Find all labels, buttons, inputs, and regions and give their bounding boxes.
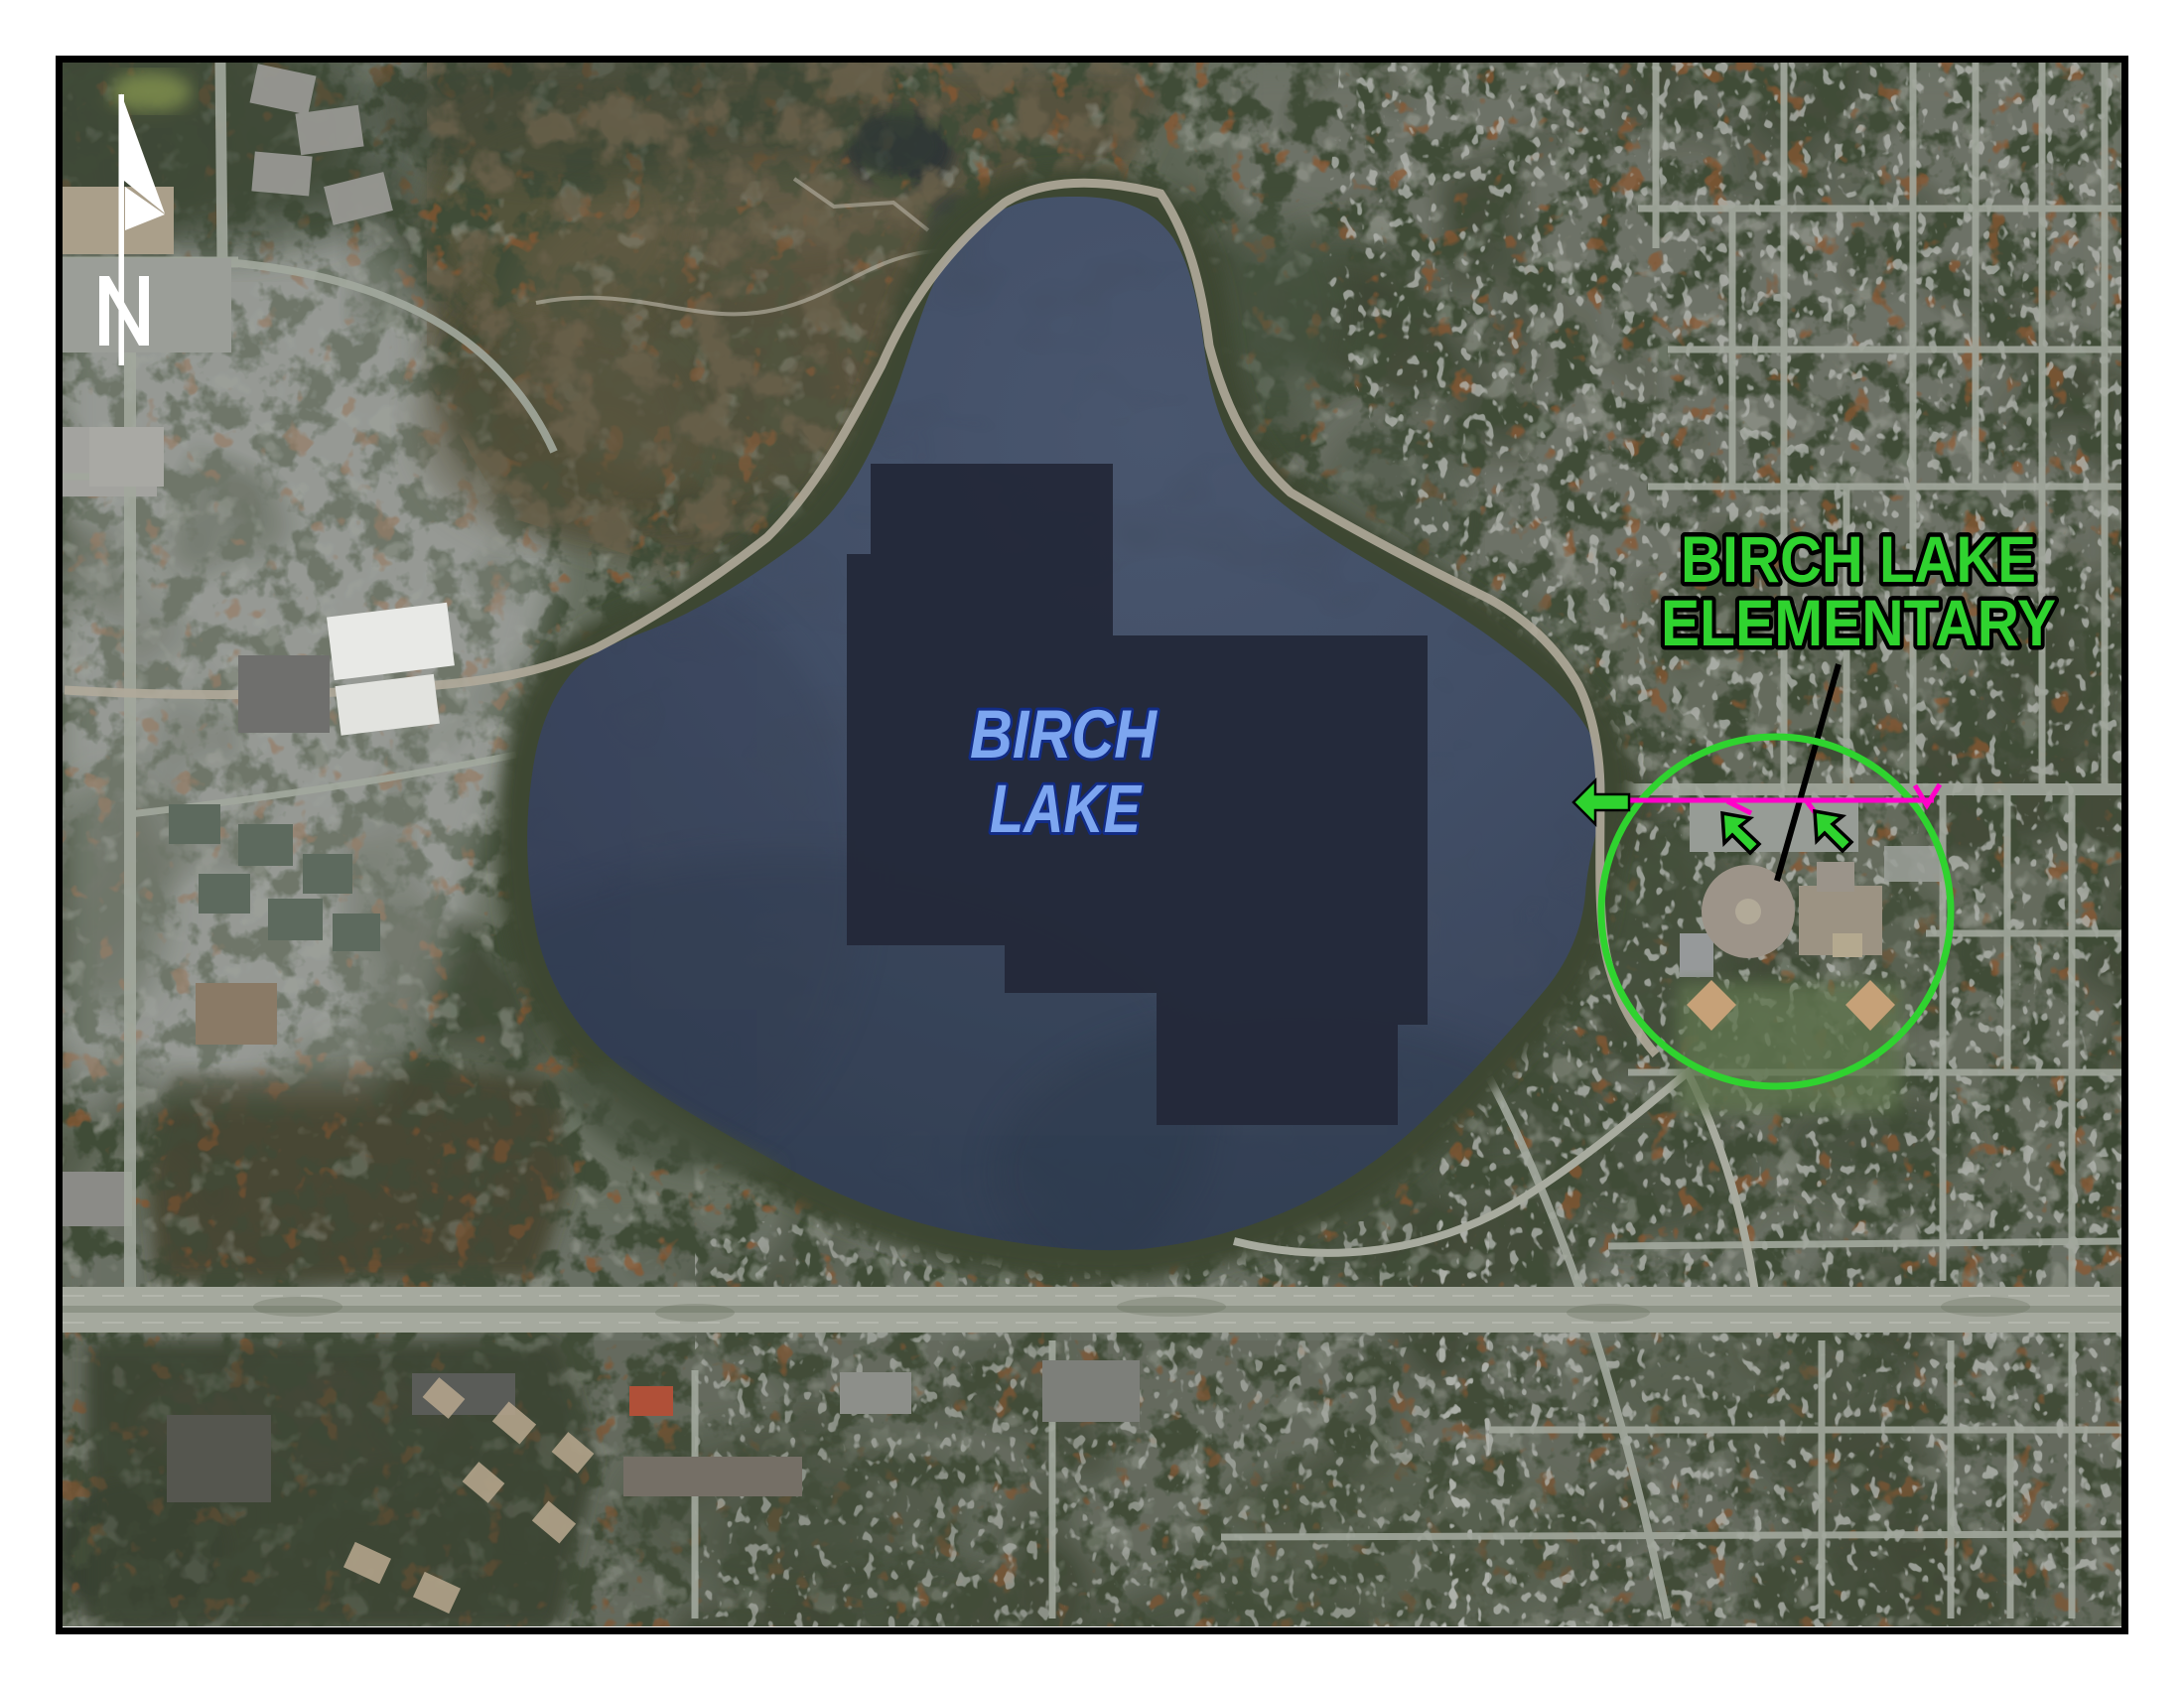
svg-text:ELEMENTARY: ELEMENTARY (1661, 586, 2056, 659)
svg-text:LAKE: LAKE (990, 771, 1143, 847)
svg-text:BIRCH LAKE: BIRCH LAKE (1681, 522, 2036, 596)
svg-text:BIRCH: BIRCH (970, 696, 1159, 773)
